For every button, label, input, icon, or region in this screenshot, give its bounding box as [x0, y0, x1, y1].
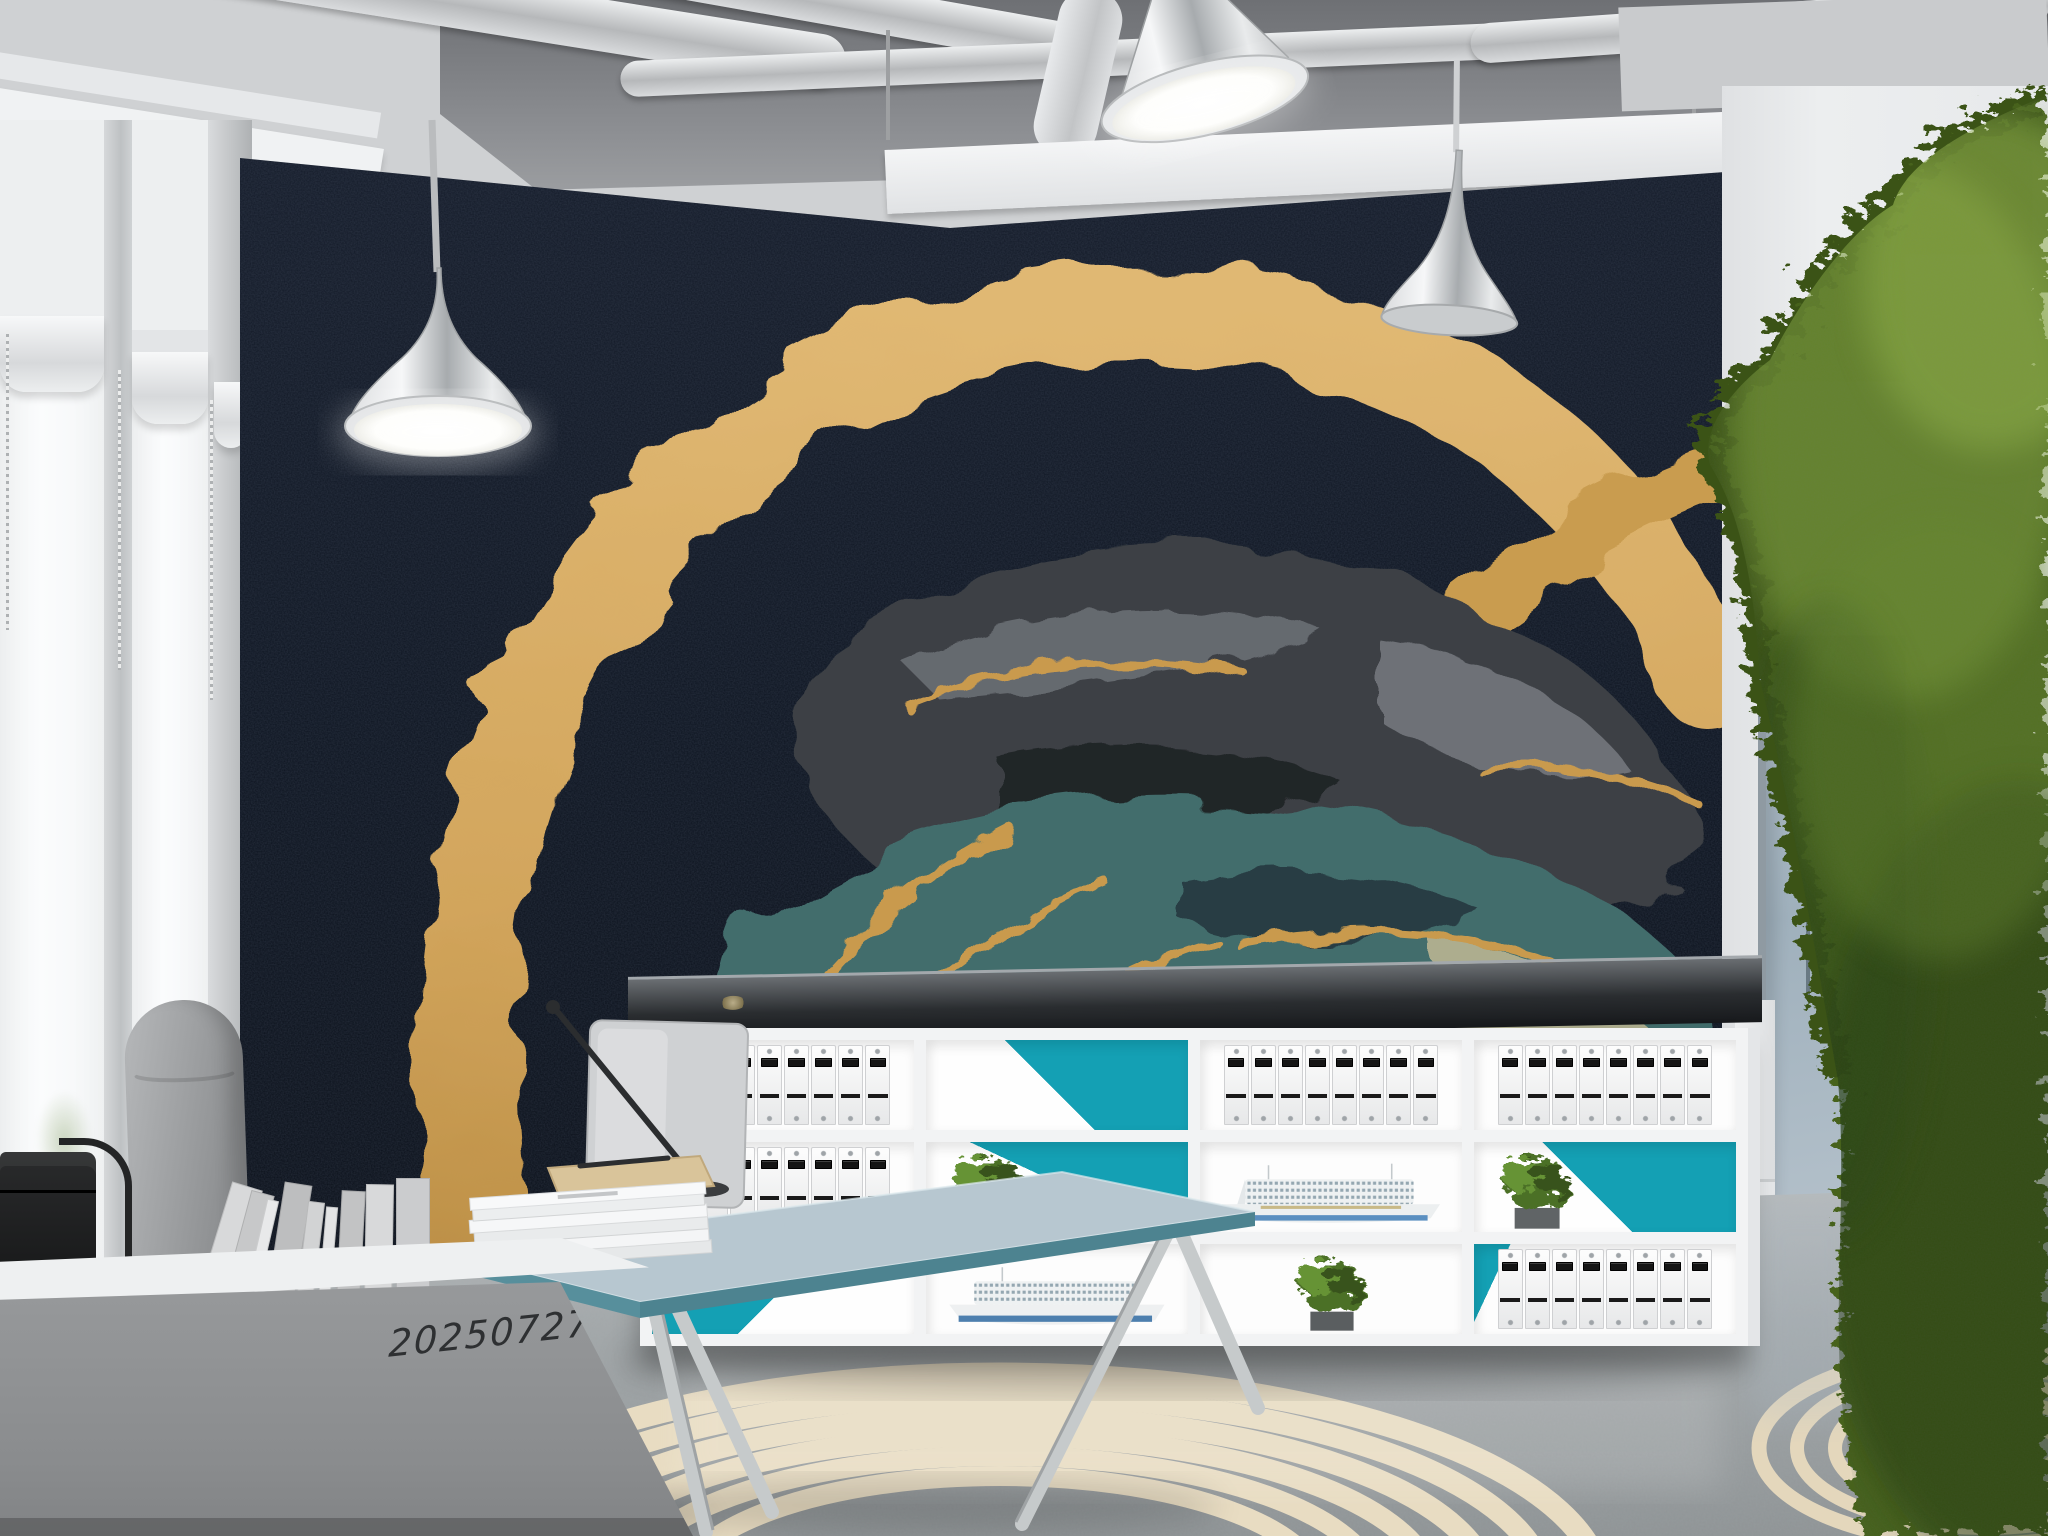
plant-wall — [0, 0, 2048, 1536]
office-scene: 20250727 — [0, 0, 2048, 1536]
